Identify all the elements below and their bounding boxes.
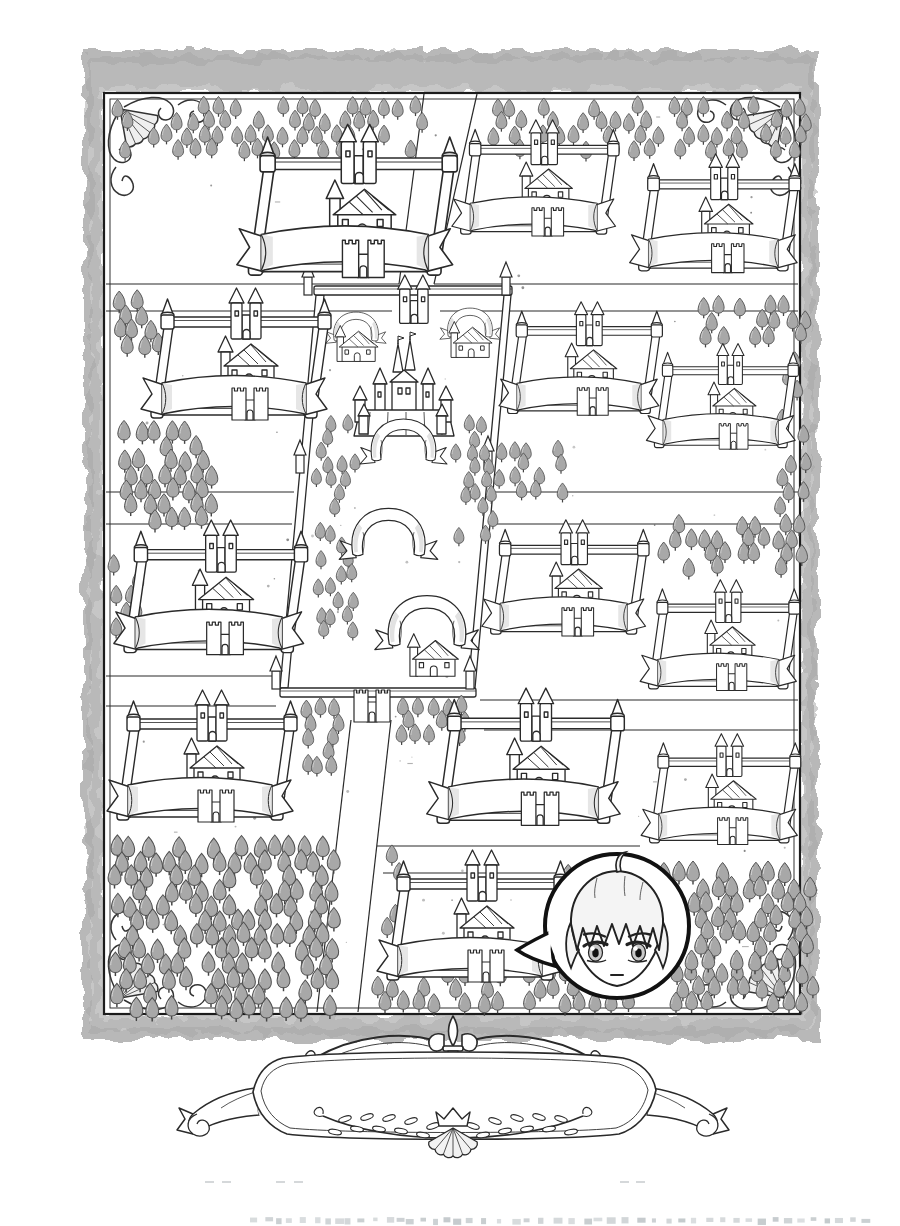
district-wall <box>314 286 512 295</box>
kingdom-map-illustration <box>0 0 900 1226</box>
manga-map-page <box>0 0 900 1226</box>
footer-cropped-text <box>205 1181 870 1225</box>
